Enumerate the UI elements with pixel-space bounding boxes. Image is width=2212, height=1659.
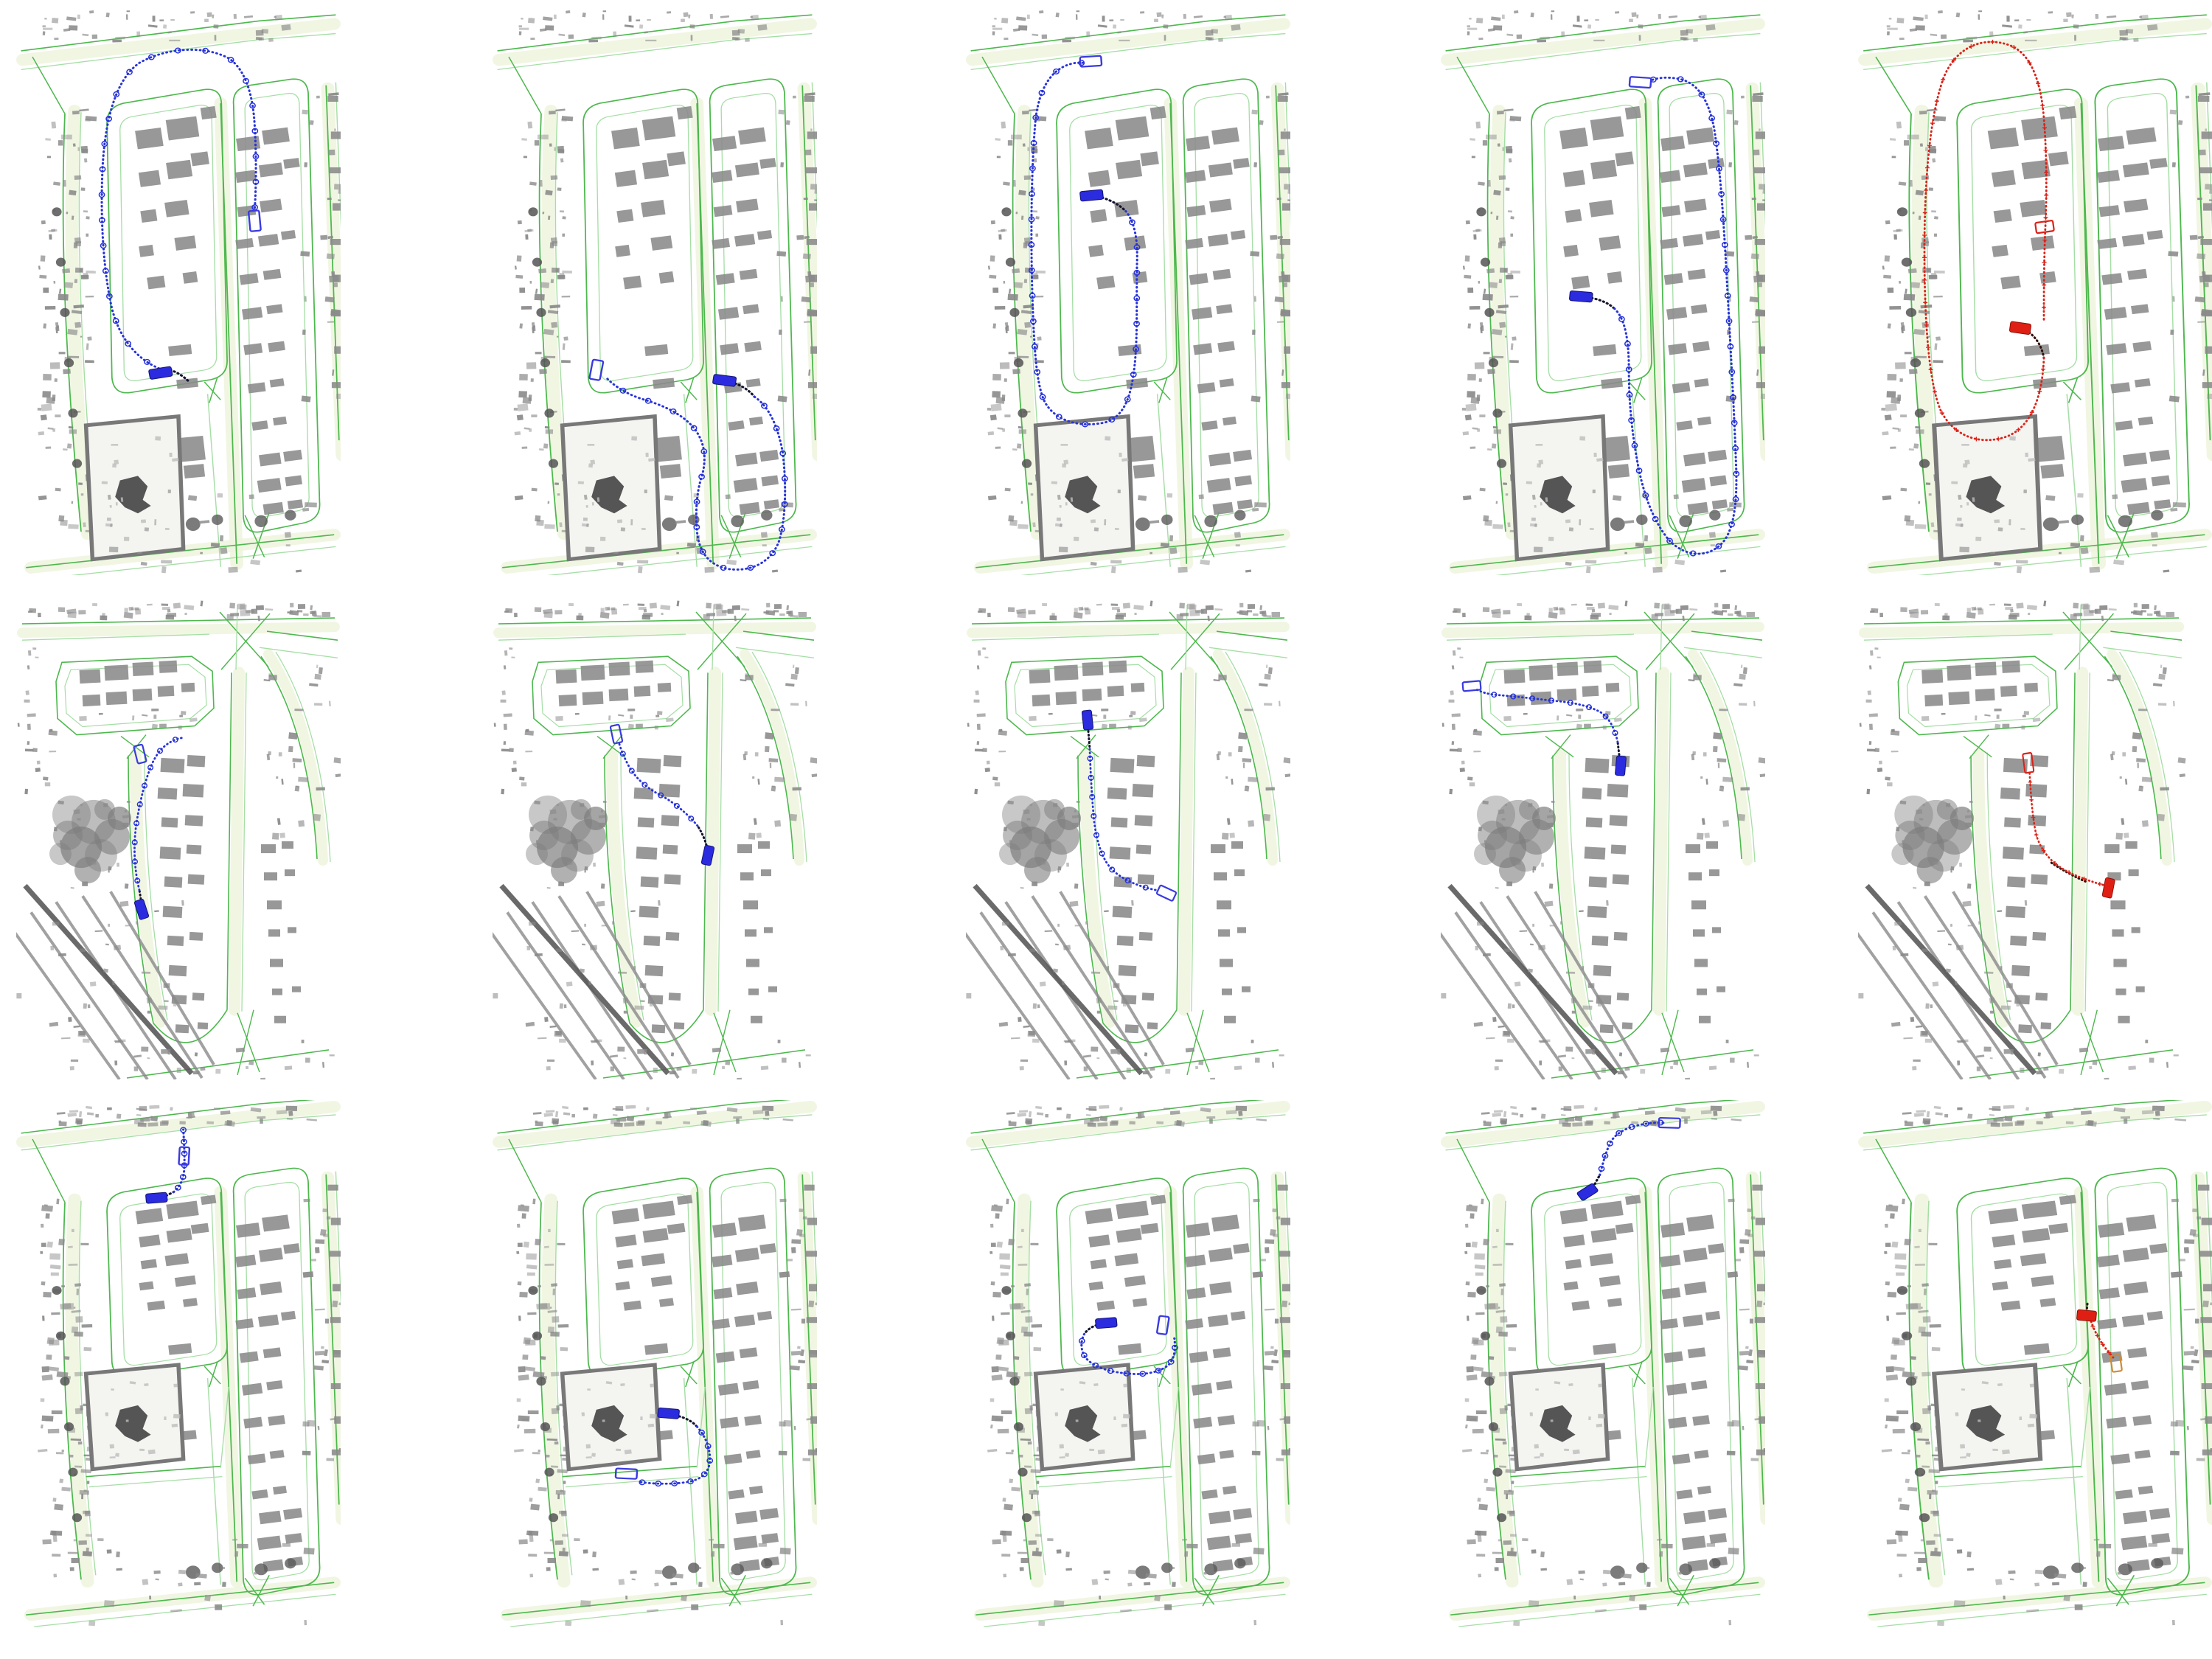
trajectory-panel-r3c3	[966, 1100, 1290, 1659]
map-panel-svg	[1858, 6, 2212, 575]
trajectory-panel-r2c2	[493, 599, 817, 1079]
map-panel-svg	[16, 6, 341, 575]
vehicle-marker	[1095, 1318, 1117, 1329]
vehicle-marker	[1615, 756, 1626, 776]
trajectory-panel-r3c1	[16, 1100, 341, 1659]
map-background	[1858, 6, 2212, 575]
map-background	[1441, 1100, 1765, 1659]
map-background	[16, 599, 341, 1079]
map-panel-svg	[16, 599, 341, 1079]
trajectory-panel-r2c5	[1858, 599, 2212, 1079]
trajectory-panel-r1c3	[966, 6, 1290, 575]
vehicle-marker	[1569, 291, 1593, 302]
map-background	[493, 6, 817, 575]
map-panel-svg	[1441, 1100, 1765, 1659]
map-panel-svg	[966, 1100, 1290, 1659]
map-background	[493, 1100, 817, 1659]
map-panel-svg	[1441, 599, 1765, 1079]
map-panel-svg	[1858, 599, 2212, 1079]
map-background	[1441, 6, 1765, 575]
map-panel-svg	[16, 1100, 341, 1659]
map-background	[966, 1100, 1290, 1659]
vehicle-marker	[658, 1408, 680, 1419]
map-background	[1441, 599, 1765, 1079]
map-background	[493, 599, 817, 1079]
map-panel-svg	[966, 599, 1290, 1079]
map-background	[966, 599, 1290, 1079]
trajectory-panel-r1c2	[493, 6, 817, 575]
trajectory-panel-r3c2	[493, 1100, 817, 1659]
map-background	[1858, 1100, 2212, 1659]
vehicle-marker	[145, 1192, 167, 1203]
map-background	[966, 6, 1290, 575]
map-background	[16, 6, 341, 575]
figure-grid	[0, 0, 2212, 1659]
vehicle-marker	[1082, 710, 1093, 730]
map-background	[16, 1100, 341, 1659]
trajectory-panel-r2c1	[16, 599, 341, 1079]
map-panel-svg	[493, 599, 817, 1079]
trajectory-panel-r2c4	[1441, 599, 1765, 1079]
trajectory-panel-r3c4	[1441, 1100, 1765, 1659]
map-panel-svg	[1441, 6, 1765, 575]
trajectory-panel-r1c4	[1441, 6, 1765, 575]
map-panel-svg	[966, 6, 1290, 575]
trajectory-panel-r3c5	[1858, 1100, 2212, 1659]
trajectory-panel-r1c1	[16, 6, 341, 575]
map-panel-svg	[493, 1100, 817, 1659]
map-background	[1858, 599, 2186, 1079]
trajectory-panel-r1c5	[1858, 6, 2212, 575]
vehicle-marker	[2076, 1310, 2096, 1321]
trajectory-panel-r2c3	[966, 599, 1290, 1079]
vehicle-marker	[1079, 189, 1103, 201]
map-panel-svg	[1858, 1100, 2212, 1659]
map-panel-svg	[493, 6, 817, 575]
